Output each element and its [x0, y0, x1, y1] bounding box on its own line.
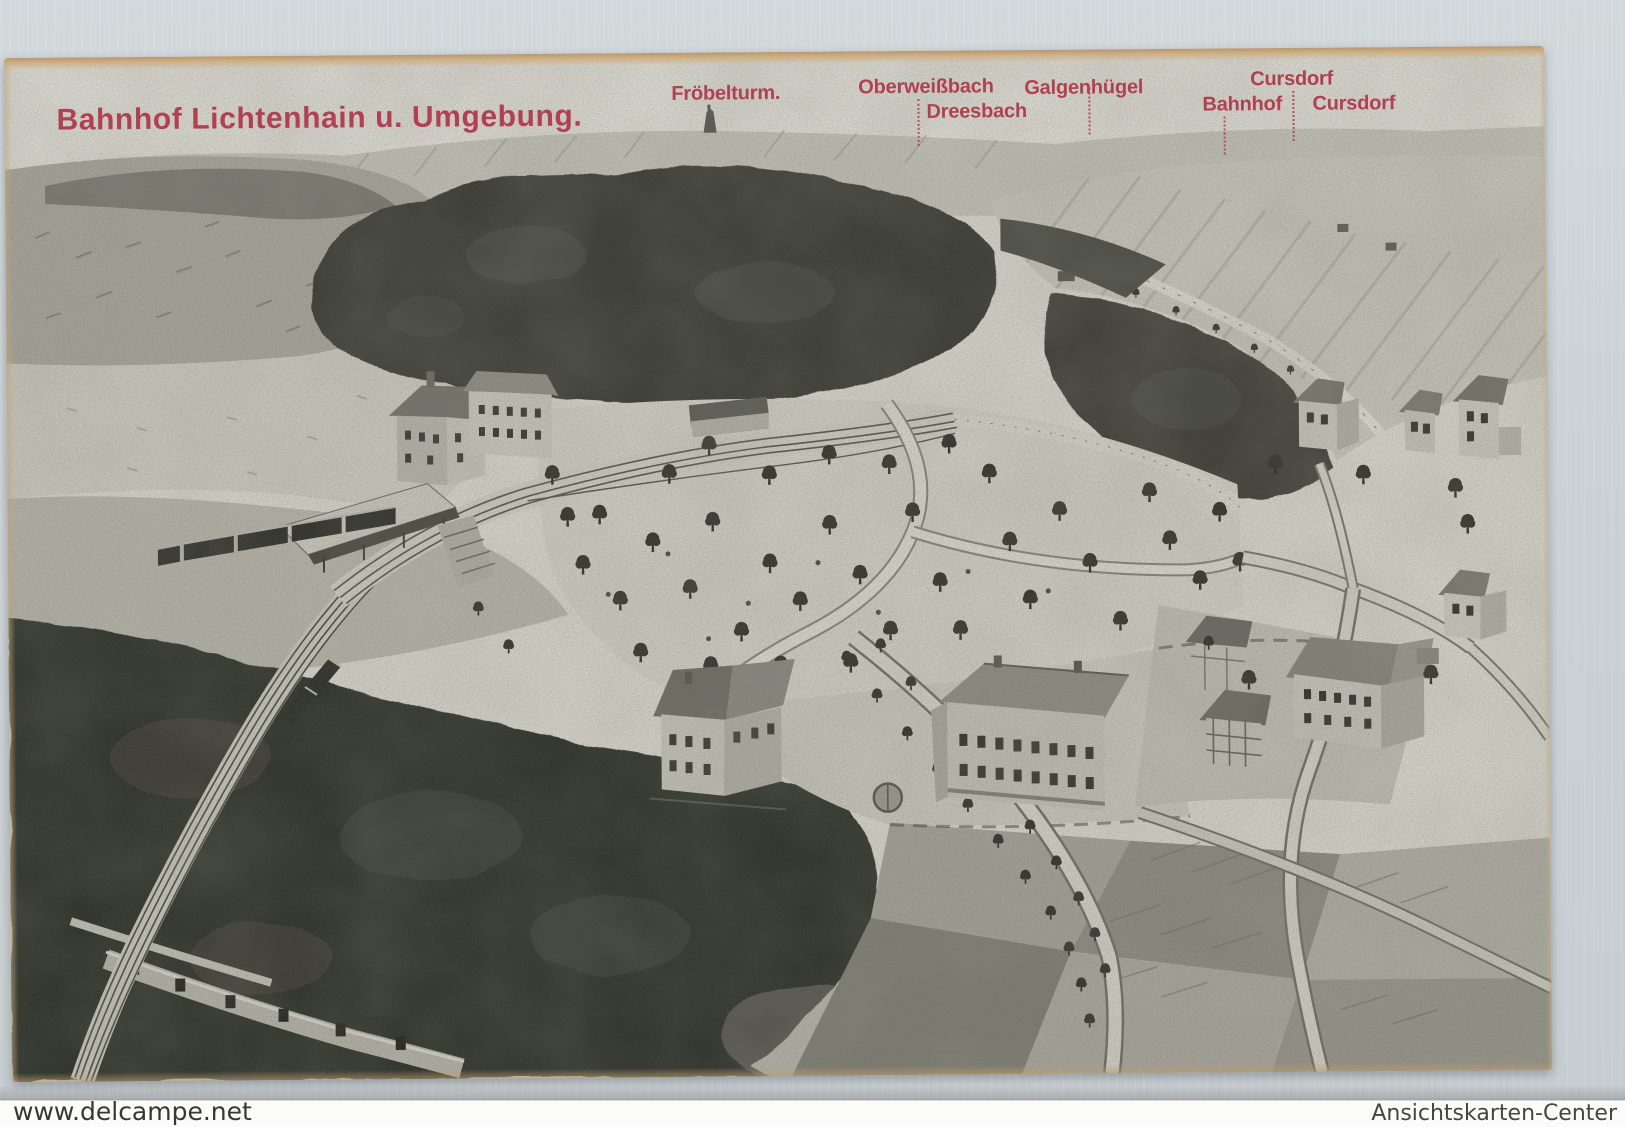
pointer-line-cursdorf	[1292, 91, 1294, 141]
page-root: Bahnhof Lichtenhain u. Umgebung. Fröbelt…	[0, 0, 1625, 1127]
label-cursdorf-upper: Cursdorf	[1250, 68, 1333, 92]
label-cursdorf-lower: Cursdorf	[1312, 92, 1395, 116]
label-galgenhuegel: Galgenhügel	[1024, 76, 1143, 100]
watermark-delcampe: www.delcampe.net	[13, 1097, 252, 1126]
postcard-image: Bahnhof Lichtenhain u. Umgebung. Fröbelt…	[4, 46, 1552, 1082]
pointer-line-oberweissbach	[917, 99, 919, 146]
postcard-artwork	[4, 46, 1552, 1082]
pointer-line-bahnhof	[1223, 116, 1225, 154]
label-dreesbach: Dreesbach	[926, 100, 1027, 124]
postcard-title: Bahnhof Lichtenhain u. Umgebung.	[56, 100, 582, 138]
label-froebelturm: Fröbelturm.	[671, 82, 780, 106]
label-bahnhof-cursdorf: Bahnhof	[1202, 93, 1282, 117]
pointer-line-galgenhuegel	[1088, 88, 1090, 135]
label-oberweissbach: Oberweißbach	[858, 75, 994, 99]
paper-grain	[4, 46, 1552, 1082]
watermark-ansichtskarten: Ansichtskarten-Center	[1371, 1101, 1617, 1126]
